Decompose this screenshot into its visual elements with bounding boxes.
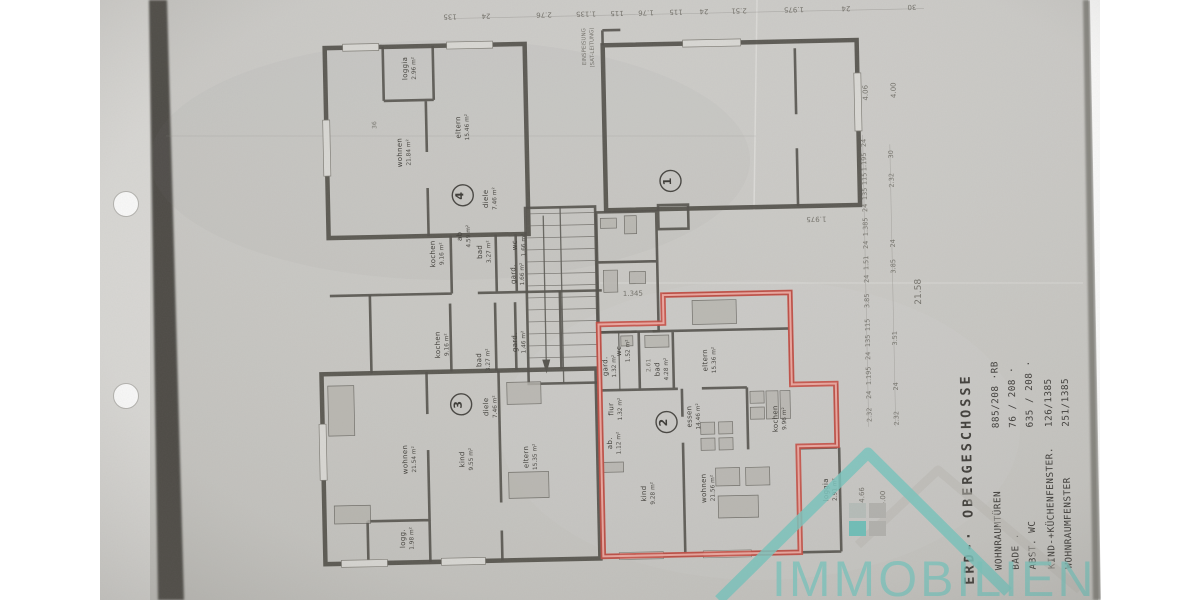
page-margin-left	[0, 0, 100, 600]
page-margin-right	[1090, 0, 1200, 600]
floorplan-scan: 12wc1.52 m²gard.1.32 m²bad4.28 m²eltern1…	[0, 0, 1200, 600]
scan-vignette	[100, 0, 1100, 600]
